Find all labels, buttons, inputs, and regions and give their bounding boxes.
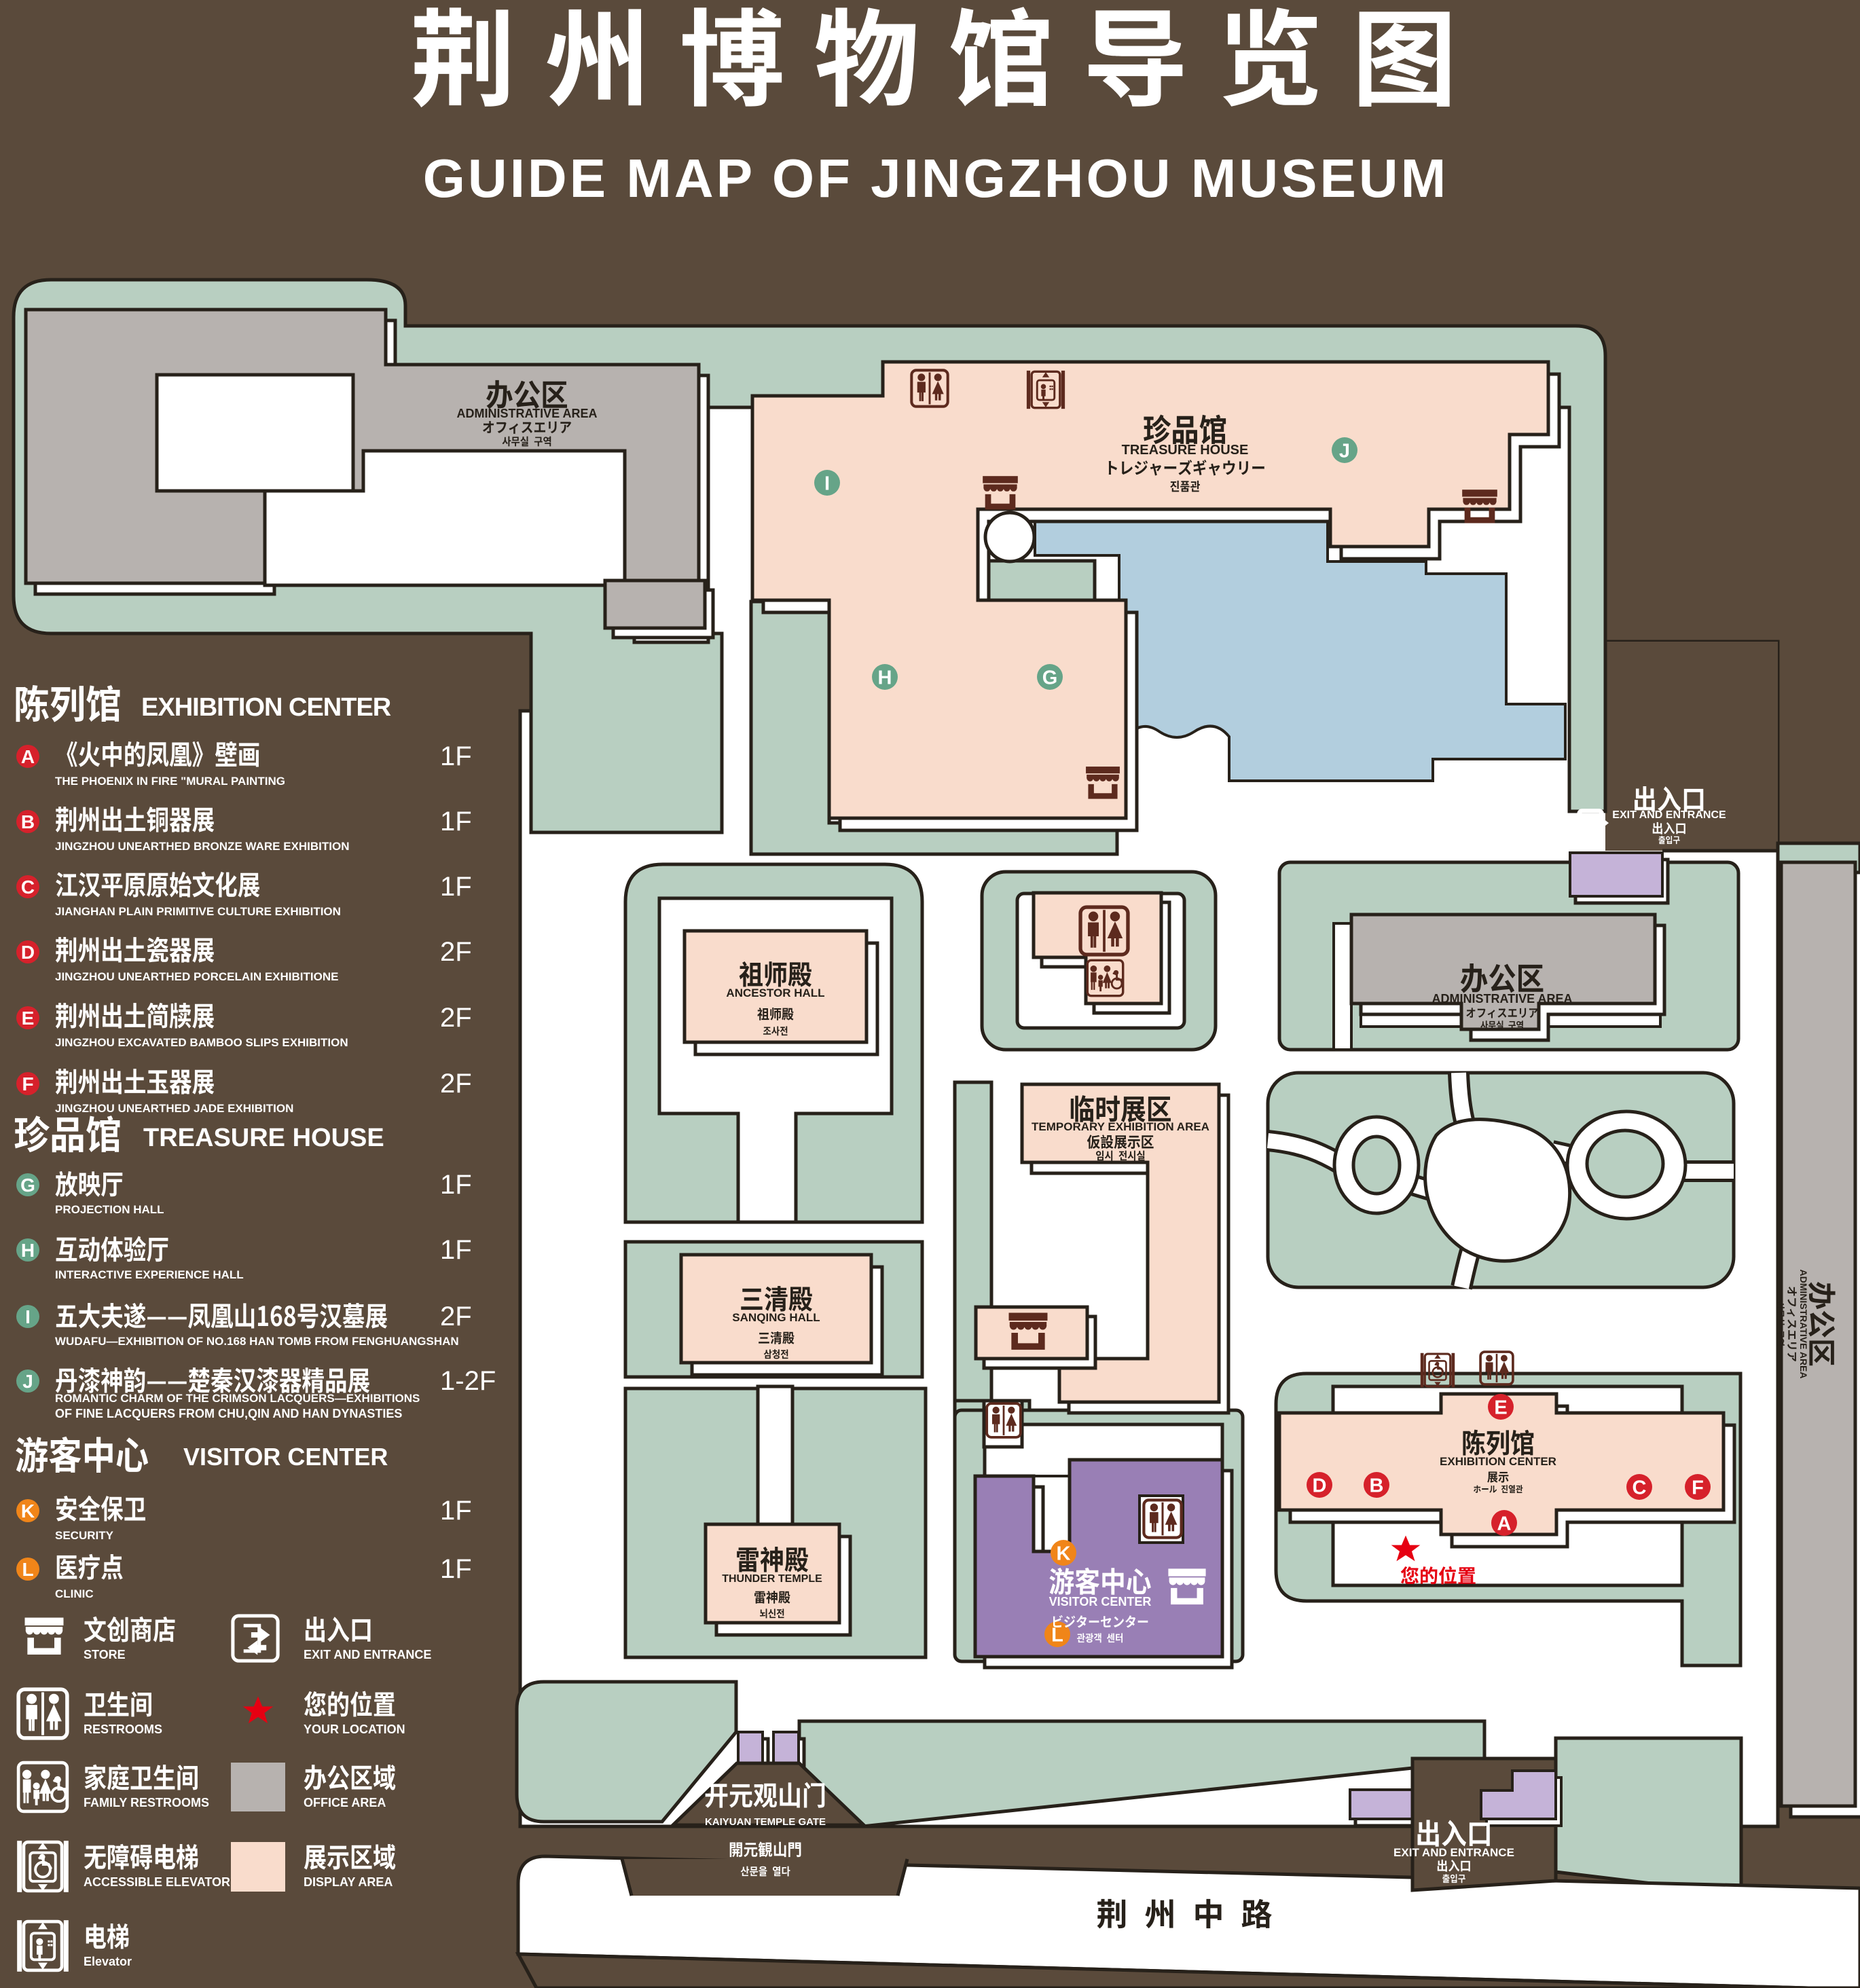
svg-text:K: K: [21, 1501, 35, 1522]
svg-text:EXIT AND ENTRANCE: EXIT AND ENTRANCE: [1612, 809, 1726, 821]
svg-text:ADMINISTRATIVE AREA: ADMINISTRATIVE AREA: [1798, 1270, 1809, 1379]
svg-text:A: A: [1497, 1513, 1512, 1534]
svg-text:1F: 1F: [440, 872, 472, 902]
svg-text:VISITOR CENTER: VISITOR CENTER: [183, 1443, 388, 1471]
svg-text:JINGZHOU UNEARTHED BRONZE WARE: JINGZHOU UNEARTHED BRONZE WARE EXHIBITIO…: [55, 840, 350, 853]
svg-text:JINGZHOU UNEARTHED JADE EXHIBI: JINGZHOU UNEARTHED JADE EXHIBITION: [55, 1102, 293, 1115]
svg-text:1F: 1F: [440, 1496, 472, 1526]
svg-text:1F: 1F: [440, 1554, 472, 1584]
svg-text:JINGZHOU UNEARTHED PORCELAIN E: JINGZHOU UNEARTHED PORCELAIN EXHIBITIONE: [55, 970, 338, 983]
svg-text:ANCESTOR HALL: ANCESTOR HALL: [726, 987, 824, 999]
svg-text:EXIT AND ENTRANCE: EXIT AND ENTRANCE: [304, 1648, 431, 1661]
svg-text:I: I: [25, 1306, 31, 1327]
svg-text:DISPLAY AREA: DISPLAY AREA: [304, 1875, 393, 1889]
svg-text:D: D: [1313, 1475, 1327, 1496]
svg-text:K: K: [1057, 1543, 1071, 1564]
svg-text:1-2F: 1-2F: [440, 1366, 496, 1396]
svg-text:1F: 1F: [440, 1170, 472, 1200]
svg-text:JIANGHAN PLAIN PRIMITIVE CULTU: JIANGHAN PLAIN PRIMITIVE CULTURE EXHIBIT…: [55, 905, 341, 918]
svg-text:ADMINISTRATIVE AREA: ADMINISTRATIVE AREA: [1432, 992, 1573, 1006]
svg-text:RESTROOMS: RESTROOMS: [84, 1723, 162, 1736]
svg-text:OF FINE LACQUERS FROM CHU,QIN: OF FINE LACQUERS FROM CHU,QIN AND HAN DY…: [55, 1407, 402, 1420]
svg-text:E: E: [22, 1008, 35, 1029]
svg-text:F: F: [22, 1073, 33, 1094]
svg-text:H: H: [878, 667, 892, 688]
svg-text:EXHIBITION CENTER: EXHIBITION CENTER: [1440, 1455, 1556, 1468]
svg-text:YOUR LOCATION: YOUR LOCATION: [304, 1723, 405, 1736]
svg-text:WUDAFU—EXHIBITION OF NO.168 HA: WUDAFU—EXHIBITION OF NO.168 HAN TOMB FRO…: [55, 1335, 459, 1348]
svg-text:PROJECTION HALL: PROJECTION HALL: [55, 1203, 164, 1216]
svg-text:TREASURE HOUSE: TREASURE HOUSE: [143, 1124, 384, 1152]
svg-text:SANQING HALL: SANQING HALL: [732, 1311, 820, 1324]
svg-text:Elevator: Elevator: [84, 1955, 132, 1968]
svg-text:1F: 1F: [440, 1235, 472, 1265]
svg-text:G: G: [1042, 667, 1058, 688]
svg-text:ACCESSIBLE ELEVATOR: ACCESSIBLE ELEVATOR: [84, 1875, 230, 1889]
svg-text:VISITOR CENTER: VISITOR CENTER: [1049, 1595, 1152, 1608]
svg-text:GUIDE MAP OF JINGZHOU MUSEUM: GUIDE MAP OF JINGZHOU MUSEUM: [423, 148, 1449, 208]
svg-text:2F: 2F: [440, 1069, 472, 1099]
svg-text:H: H: [21, 1240, 35, 1261]
svg-text:2F: 2F: [440, 937, 472, 967]
svg-text:C: C: [1633, 1477, 1647, 1498]
svg-text:SECURITY: SECURITY: [55, 1529, 114, 1542]
svg-text:OFFICE AREA: OFFICE AREA: [304, 1796, 386, 1809]
svg-text:STORE: STORE: [84, 1648, 126, 1661]
svg-text:2F: 2F: [440, 1003, 472, 1033]
svg-text:B: B: [1370, 1475, 1384, 1496]
svg-text:D: D: [21, 942, 35, 963]
svg-text:1F: 1F: [440, 741, 472, 771]
svg-text:I: I: [824, 473, 830, 494]
svg-text:E: E: [1494, 1397, 1507, 1418]
svg-text:J: J: [22, 1371, 33, 1392]
svg-text:CLINIC: CLINIC: [55, 1587, 94, 1600]
svg-text:B: B: [21, 811, 35, 832]
svg-text:L: L: [22, 1559, 33, 1580]
svg-text:L: L: [1051, 1624, 1063, 1646]
svg-text:THE PHOENIX IN FIRE "MURAL PAI: THE PHOENIX IN FIRE "MURAL PAINTING: [55, 775, 285, 788]
svg-text:FAMILY RESTROOMS: FAMILY RESTROOMS: [84, 1796, 209, 1809]
svg-text:2F: 2F: [440, 1302, 472, 1331]
svg-text:TEMPORARY EXHIBITION AREA: TEMPORARY EXHIBITION AREA: [1032, 1120, 1209, 1133]
svg-text:JINGZHOU EXCAVATED BAMBOO SLIP: JINGZHOU EXCAVATED BAMBOO SLIPS EXHIBITI…: [55, 1036, 348, 1049]
svg-text:1F: 1F: [440, 807, 472, 836]
svg-text:TREASURE HOUSE: TREASURE HOUSE: [1122, 443, 1249, 458]
svg-text:THUNDER TEMPLE: THUNDER TEMPLE: [722, 1573, 822, 1585]
svg-text:J: J: [1339, 440, 1350, 462]
svg-text:ADMINISTRATIVE AREA: ADMINISTRATIVE AREA: [457, 407, 598, 420]
svg-text:F: F: [1692, 1477, 1704, 1498]
svg-text:A: A: [21, 746, 35, 767]
svg-text:C: C: [21, 877, 35, 898]
svg-text:EXIT AND ENTRANCE: EXIT AND ENTRANCE: [1393, 1846, 1514, 1859]
svg-text:INTERACTIVE EXPERIENCE HALL: INTERACTIVE EXPERIENCE HALL: [55, 1268, 244, 1281]
svg-text:G: G: [20, 1175, 35, 1196]
svg-text:ROMANTIC CHARM OF THE CRIMSON: ROMANTIC CHARM OF THE CRIMSON LACQUERS—E…: [55, 1392, 420, 1405]
svg-text:KAIYUAN TEMPLE GATE: KAIYUAN TEMPLE GATE: [705, 1816, 826, 1828]
svg-text:EXHIBITION CENTER: EXHIBITION CENTER: [141, 693, 391, 722]
